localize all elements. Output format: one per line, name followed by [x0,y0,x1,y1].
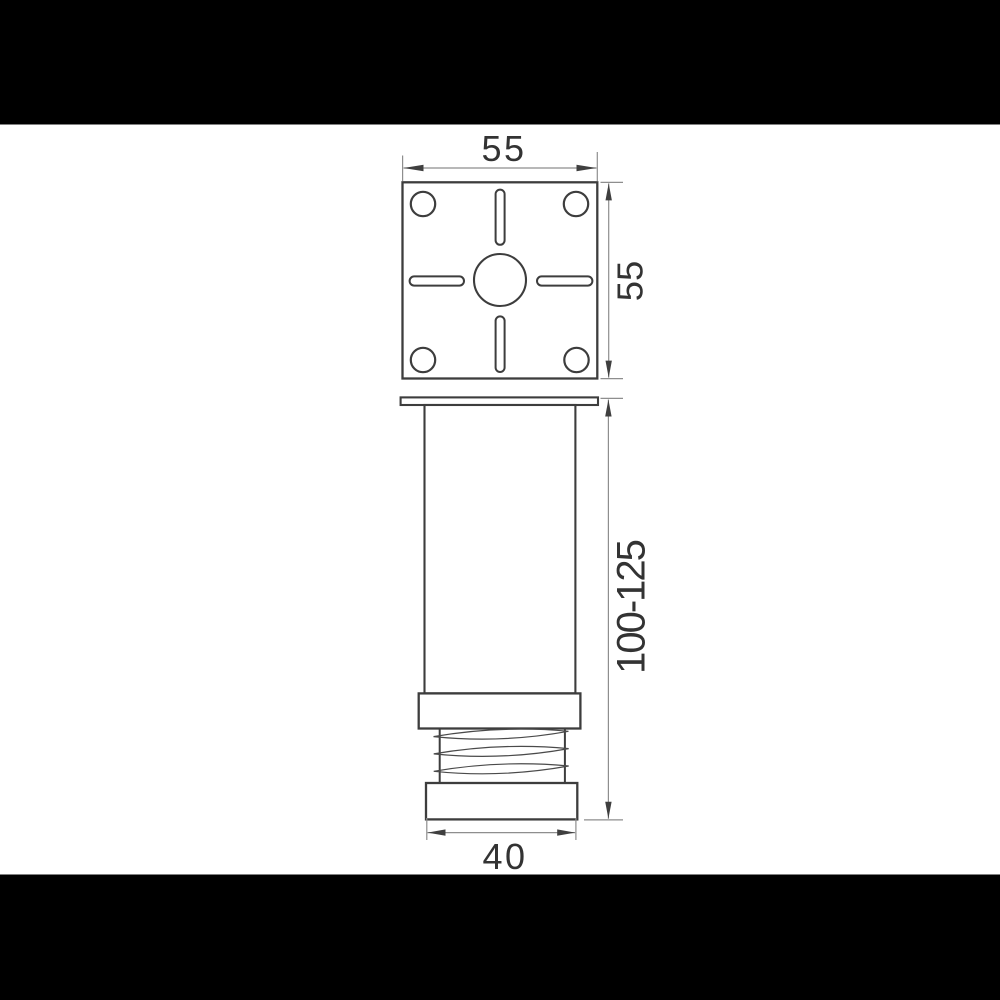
svg-text:55: 55 [481,128,526,169]
svg-text:100-125: 100-125 [610,540,654,674]
svg-text:55: 55 [609,261,650,302]
svg-text:40: 40 [482,836,527,877]
